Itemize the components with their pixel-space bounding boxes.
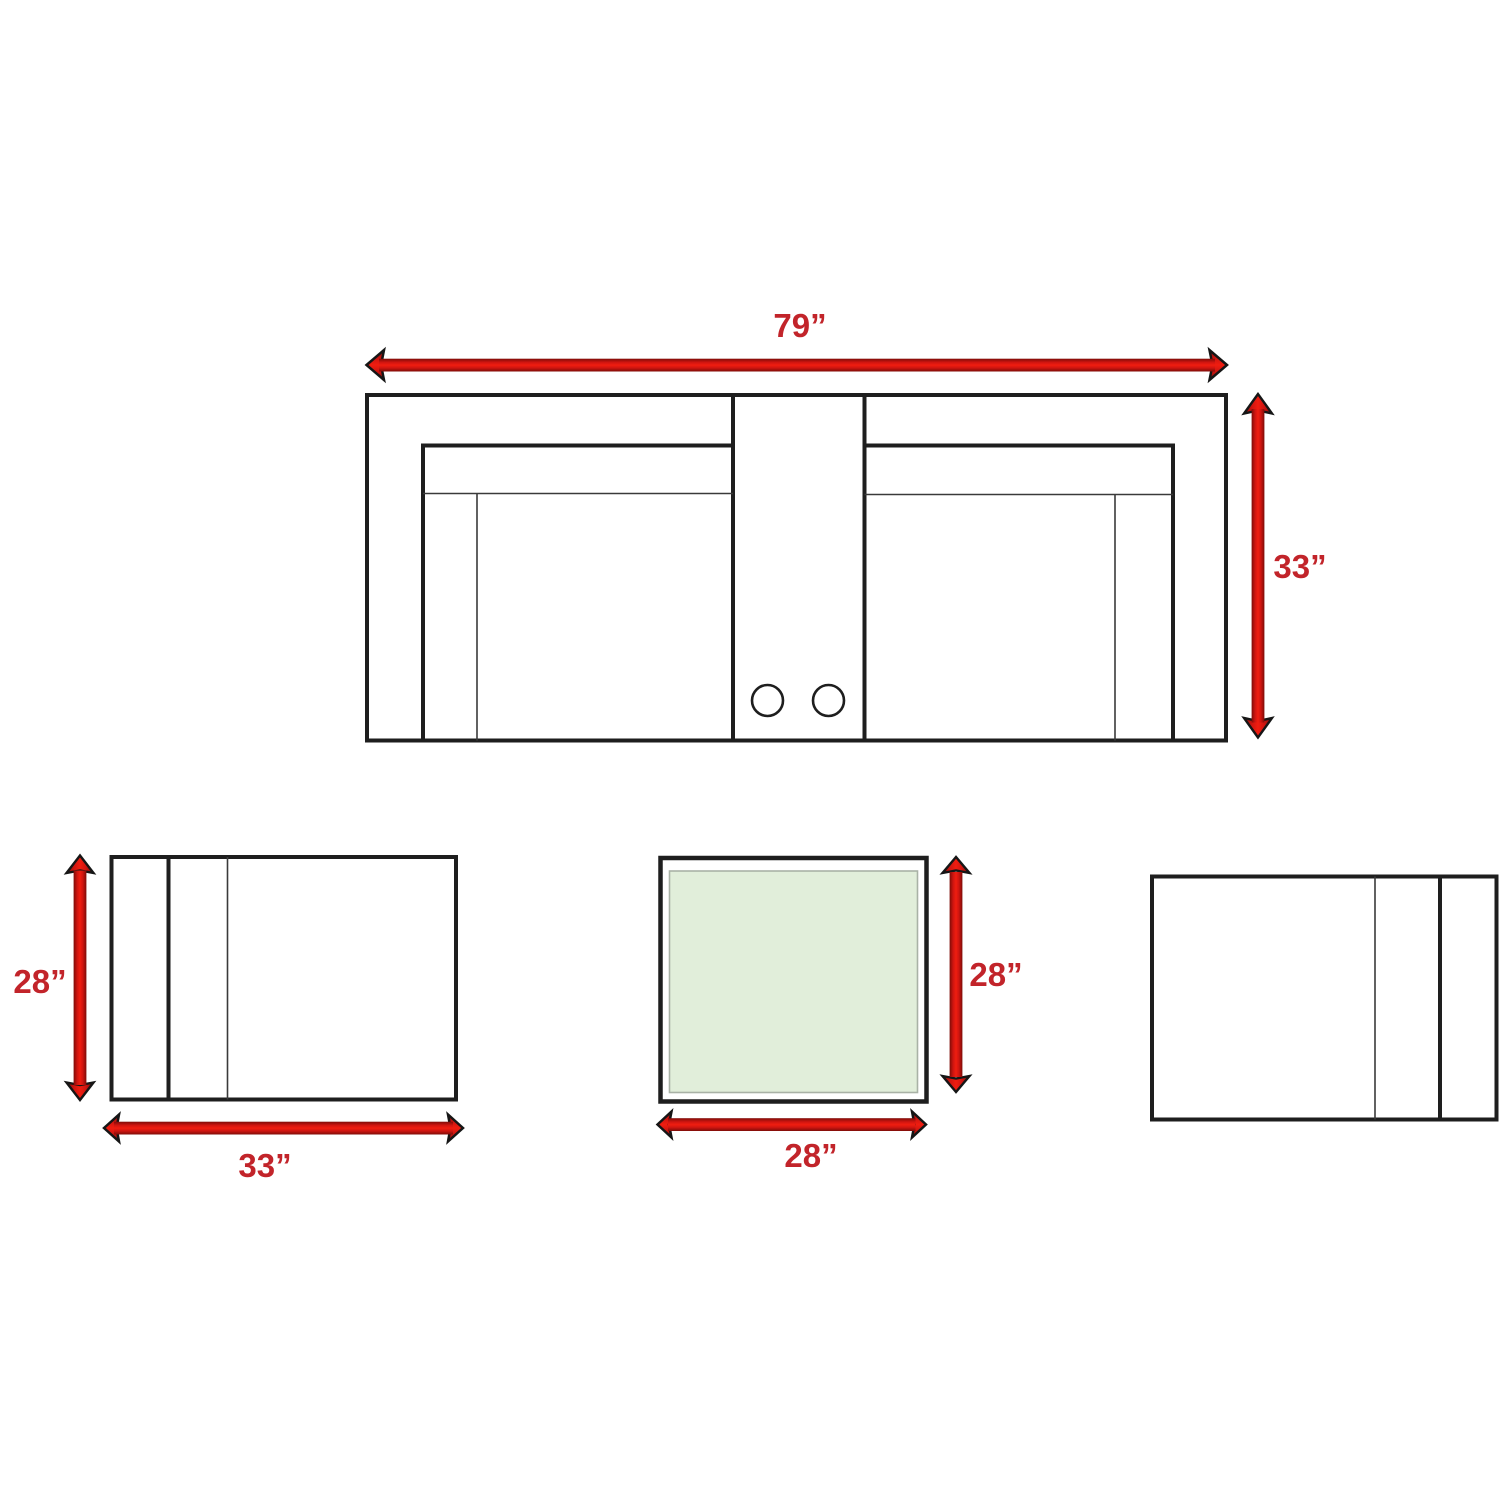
svg-text:79”: 79”	[773, 307, 826, 344]
svg-text:33”: 33”	[1273, 548, 1326, 585]
svg-text:33”: 33”	[238, 1147, 291, 1184]
svg-text:28”: 28”	[784, 1137, 837, 1174]
svg-text:28”: 28”	[13, 963, 66, 1000]
svg-text:28”: 28”	[969, 956, 1022, 993]
